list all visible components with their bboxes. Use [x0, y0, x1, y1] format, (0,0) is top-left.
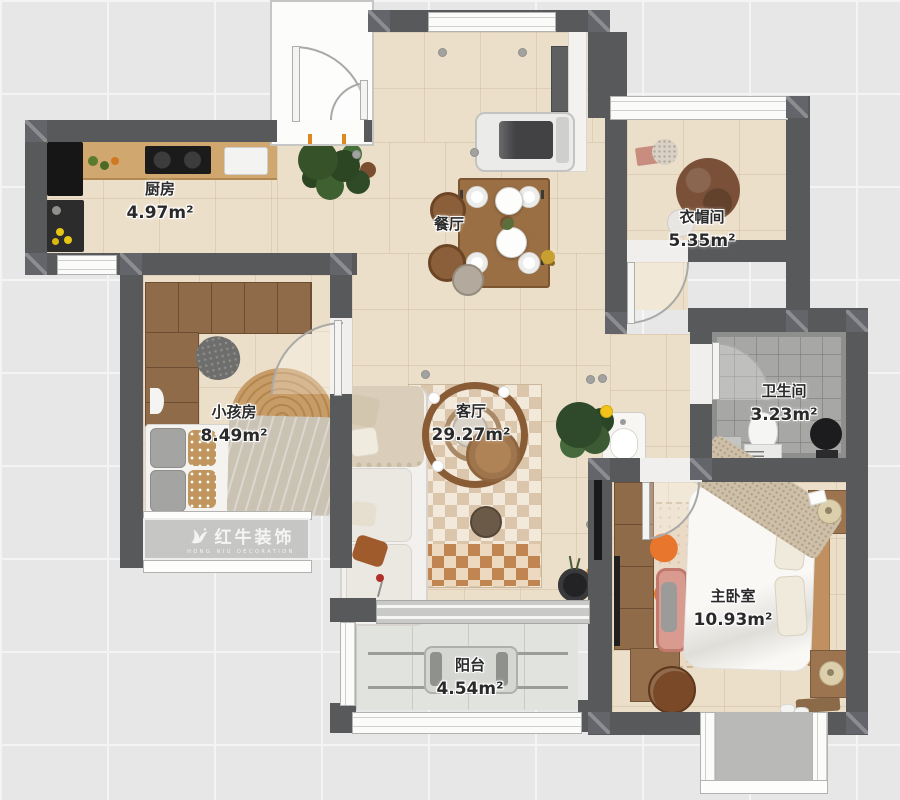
kids-pillow-dotted-2 — [188, 470, 216, 508]
corridor-plant — [556, 402, 602, 448]
entry-threshold-mark — [308, 134, 312, 144]
dinner-plate-4 — [518, 252, 540, 274]
wall-vestibule-nub — [364, 120, 372, 142]
wardrobe-handle — [150, 388, 164, 414]
table-centerpiece — [500, 216, 514, 230]
throw-pillow-cream — [349, 501, 377, 528]
room-label-bathroom: 卫生间 3.23m² — [750, 381, 817, 427]
entry-plant — [298, 140, 338, 180]
wall-corner — [846, 712, 868, 734]
ceiling-spotlight — [421, 370, 430, 379]
cooktop — [145, 146, 211, 174]
window-dining-top — [428, 12, 556, 32]
master-bedroom-area: 10.93m² — [694, 608, 773, 633]
window-cloakroom-top — [610, 96, 788, 120]
kitchen-name: 厨房 — [126, 179, 193, 201]
window-kitchen-bottom — [57, 255, 117, 275]
wall-corner — [786, 96, 808, 118]
room-label-kitchen: 厨房 4.97m² — [126, 179, 193, 225]
entry-door-leaf-large — [292, 46, 300, 122]
cloakroom-area: 5.35m² — [668, 229, 735, 254]
wall-corner — [786, 310, 808, 332]
pet-bed-cushion — [661, 582, 677, 632]
kids-pillow-gray — [150, 428, 186, 468]
lemon-2 — [64, 236, 72, 244]
wardrobe-tv-panel — [614, 556, 620, 646]
wall-kids-left — [120, 275, 143, 568]
kitchen-faucet — [52, 206, 61, 215]
dining-chair-gray — [452, 264, 484, 296]
cloakroom-door-leaf — [627, 262, 635, 324]
ceiling-spotlight — [438, 48, 447, 57]
wall-corner — [588, 712, 610, 734]
vanity-basin — [610, 428, 638, 460]
bull-logo-icon — [188, 525, 210, 547]
wall-corner — [25, 253, 47, 275]
floor-plan-canvas: 厨房 4.97m² 餐厅 衣帽间 5.35m² 小孩房 8.49m² 客厅 29… — [0, 0, 900, 800]
brand-watermark: 红牛装饰 HONG NIU DECORATION — [158, 517, 324, 561]
wall-corner — [690, 458, 712, 480]
ceiling-spotlight — [598, 374, 607, 383]
balcony-area: 4.54m² — [436, 677, 503, 702]
master-bedroom-name: 主卧室 — [694, 586, 773, 608]
wall-corner — [588, 10, 610, 32]
dinner-plate — [466, 186, 488, 208]
yellow-pendant-dot — [600, 405, 613, 418]
vegetable-green — [88, 156, 98, 166]
cloakroom-name: 衣帽间 — [668, 207, 735, 229]
room-label-master: 主卧室 10.93m² — [694, 586, 773, 632]
kids-pillow-gray-2 — [150, 470, 186, 512]
brand-name: 红牛装饰 — [215, 523, 295, 548]
entry-threshold-mark-2 — [342, 134, 346, 144]
kids-wardrobe-top — [145, 282, 312, 334]
window-balcony-left — [340, 622, 356, 706]
bedroom-door-leaf — [642, 482, 650, 540]
wall-corner — [120, 253, 142, 275]
wall-corner — [588, 458, 610, 480]
wall-corner — [330, 253, 352, 275]
living-room-area: 29.27m² — [432, 423, 511, 448]
vanity-faucet — [620, 419, 626, 425]
table-lamp-2-center — [827, 669, 834, 676]
treadmill-belt — [499, 121, 553, 159]
wall-bedroom-top-right — [702, 458, 868, 482]
side-table-dark — [470, 506, 502, 538]
wall-dining-cloakroom — [605, 32, 627, 334]
wall-kids-right-lower — [330, 392, 352, 568]
room-label-cloakroom: 衣帽间 5.35m² — [668, 207, 735, 253]
wall-bathroom-top — [688, 308, 868, 332]
room-label-living: 客厅 29.27m² — [432, 401, 511, 447]
table-lamp-center — [825, 507, 832, 514]
bathroom-area: 3.23m² — [750, 403, 817, 428]
ring-bead-2 — [498, 386, 510, 398]
ceiling-spotlight — [586, 375, 595, 384]
black-planter — [558, 568, 592, 602]
wall-corner — [25, 120, 47, 142]
wall-outer-right — [846, 308, 868, 735]
throw-pillow-white — [348, 426, 380, 458]
dining-name: 餐厅 — [434, 214, 464, 236]
lemon — [56, 228, 64, 236]
cloakroom-fluffy-stool — [652, 139, 678, 165]
pendant-lamp-2 — [496, 227, 527, 258]
wall-living-bottom-left — [330, 598, 376, 622]
brand-name-en: HONG NIU DECORATION — [187, 549, 295, 555]
wall-cloakroom-right — [786, 96, 810, 332]
wall-kitchen-top — [25, 120, 277, 142]
vegetable-green-2 — [100, 161, 109, 170]
room-label-balcony: 阳台 4.54m² — [436, 655, 503, 701]
wall-corner — [846, 310, 868, 332]
bathroom-door-leaf — [712, 342, 720, 400]
treadmill-console — [556, 117, 569, 163]
entry-door-leaf-small — [360, 80, 368, 120]
pendant-lamp — [495, 187, 523, 215]
kids-room-name: 小孩房 — [200, 402, 267, 424]
master-bay-window-floor — [714, 712, 812, 780]
vegetable-orange — [111, 157, 119, 165]
bathroom-name: 卫生间 — [750, 381, 817, 403]
red-flower — [376, 574, 384, 582]
room-label-kids: 小孩房 8.49m² — [200, 402, 267, 448]
kitchen-area: 4.97m² — [126, 201, 193, 226]
wall-kitchen-left — [25, 120, 47, 275]
room-label-dining: 餐厅 — [434, 214, 464, 236]
bed-pillow-2 — [774, 575, 808, 637]
ceiling-spotlight — [470, 148, 479, 157]
cutlery-3 — [541, 190, 544, 199]
ring-bead-3 — [432, 460, 444, 472]
kids-bay-window-frame-bottom — [143, 560, 312, 573]
bathroom-door-frame — [690, 344, 712, 404]
balcony-name: 阳台 — [436, 655, 503, 677]
wall-corner — [605, 312, 627, 334]
ceiling-spotlight — [518, 48, 527, 57]
living-room-name: 客厅 — [432, 401, 511, 423]
master-bay-frame-bottom — [700, 780, 828, 794]
lemon-3 — [52, 238, 59, 245]
fridge — [47, 142, 83, 196]
balcony-sliding-door — [376, 600, 590, 624]
brown-pouf — [648, 666, 696, 714]
ceiling-spotlight — [352, 150, 361, 159]
cloakroom-door-arc — [627, 262, 689, 324]
wall-bathroom-left-upper — [690, 332, 712, 344]
table-flowers — [541, 250, 555, 264]
kids-door-leaf — [334, 320, 342, 396]
wall-bathroom-left-lower — [690, 404, 712, 458]
kids-room-area: 8.49m² — [200, 424, 267, 449]
wall-corner — [368, 10, 390, 32]
window-balcony-bottom — [352, 712, 582, 734]
kitchen-sink — [224, 147, 268, 175]
